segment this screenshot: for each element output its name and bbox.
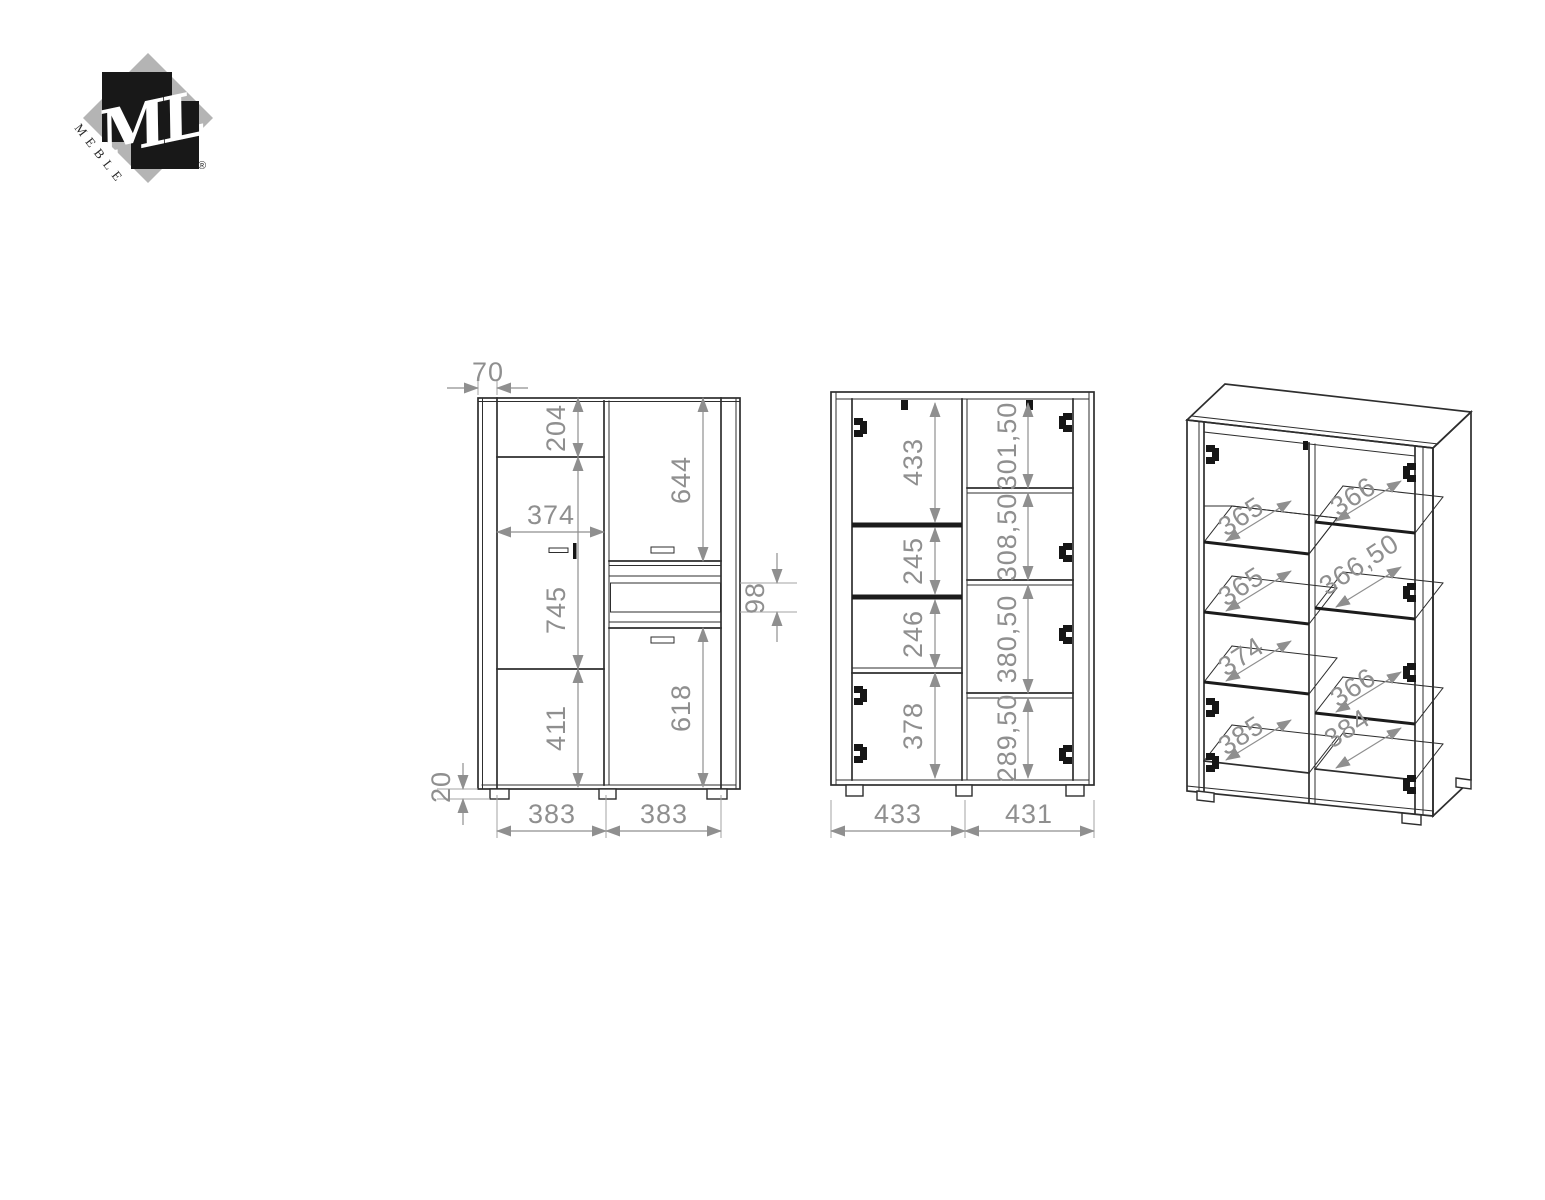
hinge-icon [1403,663,1416,682]
dim-label: 411 [541,705,571,751]
dim-label: 366 [1325,662,1382,713]
dim-label: 378 [898,702,928,750]
top-fitting [1303,441,1308,450]
dim-label: 644 [666,456,696,504]
hinge-icon [1403,775,1416,794]
left-door-handle-tick [573,543,577,559]
dim-label: 374 [1213,631,1270,682]
front-view-cabinet [478,398,740,799]
drawing-page: ML MEBLE ® [0,0,1545,1200]
dim-label: 366,50 [1314,528,1405,601]
technical-drawing: ML MEBLE ® [0,0,1545,1200]
dim-label: 385 [1213,710,1270,761]
dim-label: 380,50 [992,595,1022,684]
foot [707,789,727,799]
woven-insert-panel [611,583,721,612]
dim-label: 366 [1325,471,1382,522]
top-fitting [1026,400,1033,410]
hinge-icon [1206,698,1219,717]
right-top-door-handle [651,547,674,553]
front-view-dimensions: 70 204 745 411 374 644 618 98 [426,357,797,838]
left-door-handle [549,548,568,553]
section-view-cabinet [831,392,1094,796]
dim-label: 745 [541,586,571,634]
dim-label: 618 [666,684,696,732]
foot [1456,778,1471,789]
dim-label: 365 [1213,561,1270,612]
hinge-icon [854,744,867,763]
dim-label: 301,50 [992,402,1022,491]
foot [956,785,972,796]
dim-label: 433 [898,438,928,486]
foot [1066,785,1084,796]
hinge-icon [1206,753,1219,772]
dim-label: 384 [1319,703,1376,754]
hinge-icon [1403,583,1416,602]
dim-label: 246 [898,610,928,658]
foot [490,789,509,799]
dim-label: 308,50 [992,493,1022,582]
hinge-icon [1059,543,1072,562]
dim-label-door-width: 374 [527,500,575,530]
right-bottom-door-handle [651,637,674,643]
hinge-icon [1059,625,1072,644]
dim-label: 365 [1213,491,1270,542]
hinge-icon [1206,445,1219,464]
logo-registered-icon: ® [198,160,206,172]
hinge-icon [854,418,867,437]
dim-label: 245 [898,537,928,585]
top-fitting [901,400,908,410]
hinge-icon [854,686,867,705]
foot [846,785,863,796]
dim-label: 383 [640,799,688,829]
brand-logo: ML MEBLE ® [72,53,213,188]
foot [1197,791,1214,802]
dim-label-side-panel: 70 [472,357,504,387]
perspective-view: 365 365 374 385 366 366,50 366 384 [1187,384,1471,825]
dim-label: 431 [1005,799,1053,829]
right-face [1433,412,1471,816]
top-face [1187,384,1471,448]
hinge-icon [1059,745,1072,764]
section-view: 433 245 246 378 301,50 308,50 380,50 289… [831,392,1094,838]
dim-label: 289,50 [992,694,1022,783]
dim-label: 204 [541,404,571,452]
hinge-icon [1403,463,1416,482]
dim-label: 433 [874,799,922,829]
front-view: 70 204 745 411 374 644 618 98 [426,357,797,838]
dim-label: 383 [528,799,576,829]
dim-label-foot: 20 [426,771,456,803]
foot [599,789,616,799]
foot [1402,813,1421,825]
dim-label-insert: 98 [740,582,770,614]
hinge-icon [1059,413,1072,432]
